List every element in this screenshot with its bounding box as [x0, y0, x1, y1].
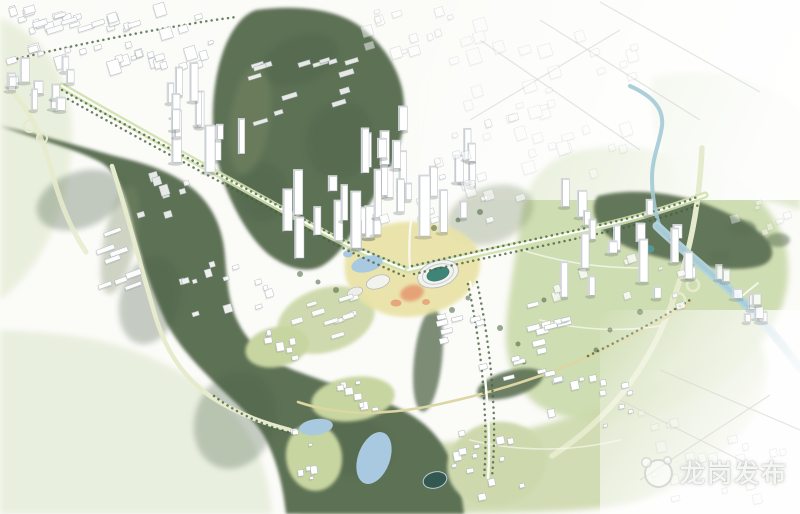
plaza-orange-small [422, 299, 430, 305]
tree-clump [766, 233, 790, 247]
tree-clump [710, 250, 730, 262]
plaza-orange-small [391, 300, 402, 307]
masterplan-rendering: 龙岗发布 [0, 0, 800, 514]
masterplan-canvas [0, 0, 800, 514]
